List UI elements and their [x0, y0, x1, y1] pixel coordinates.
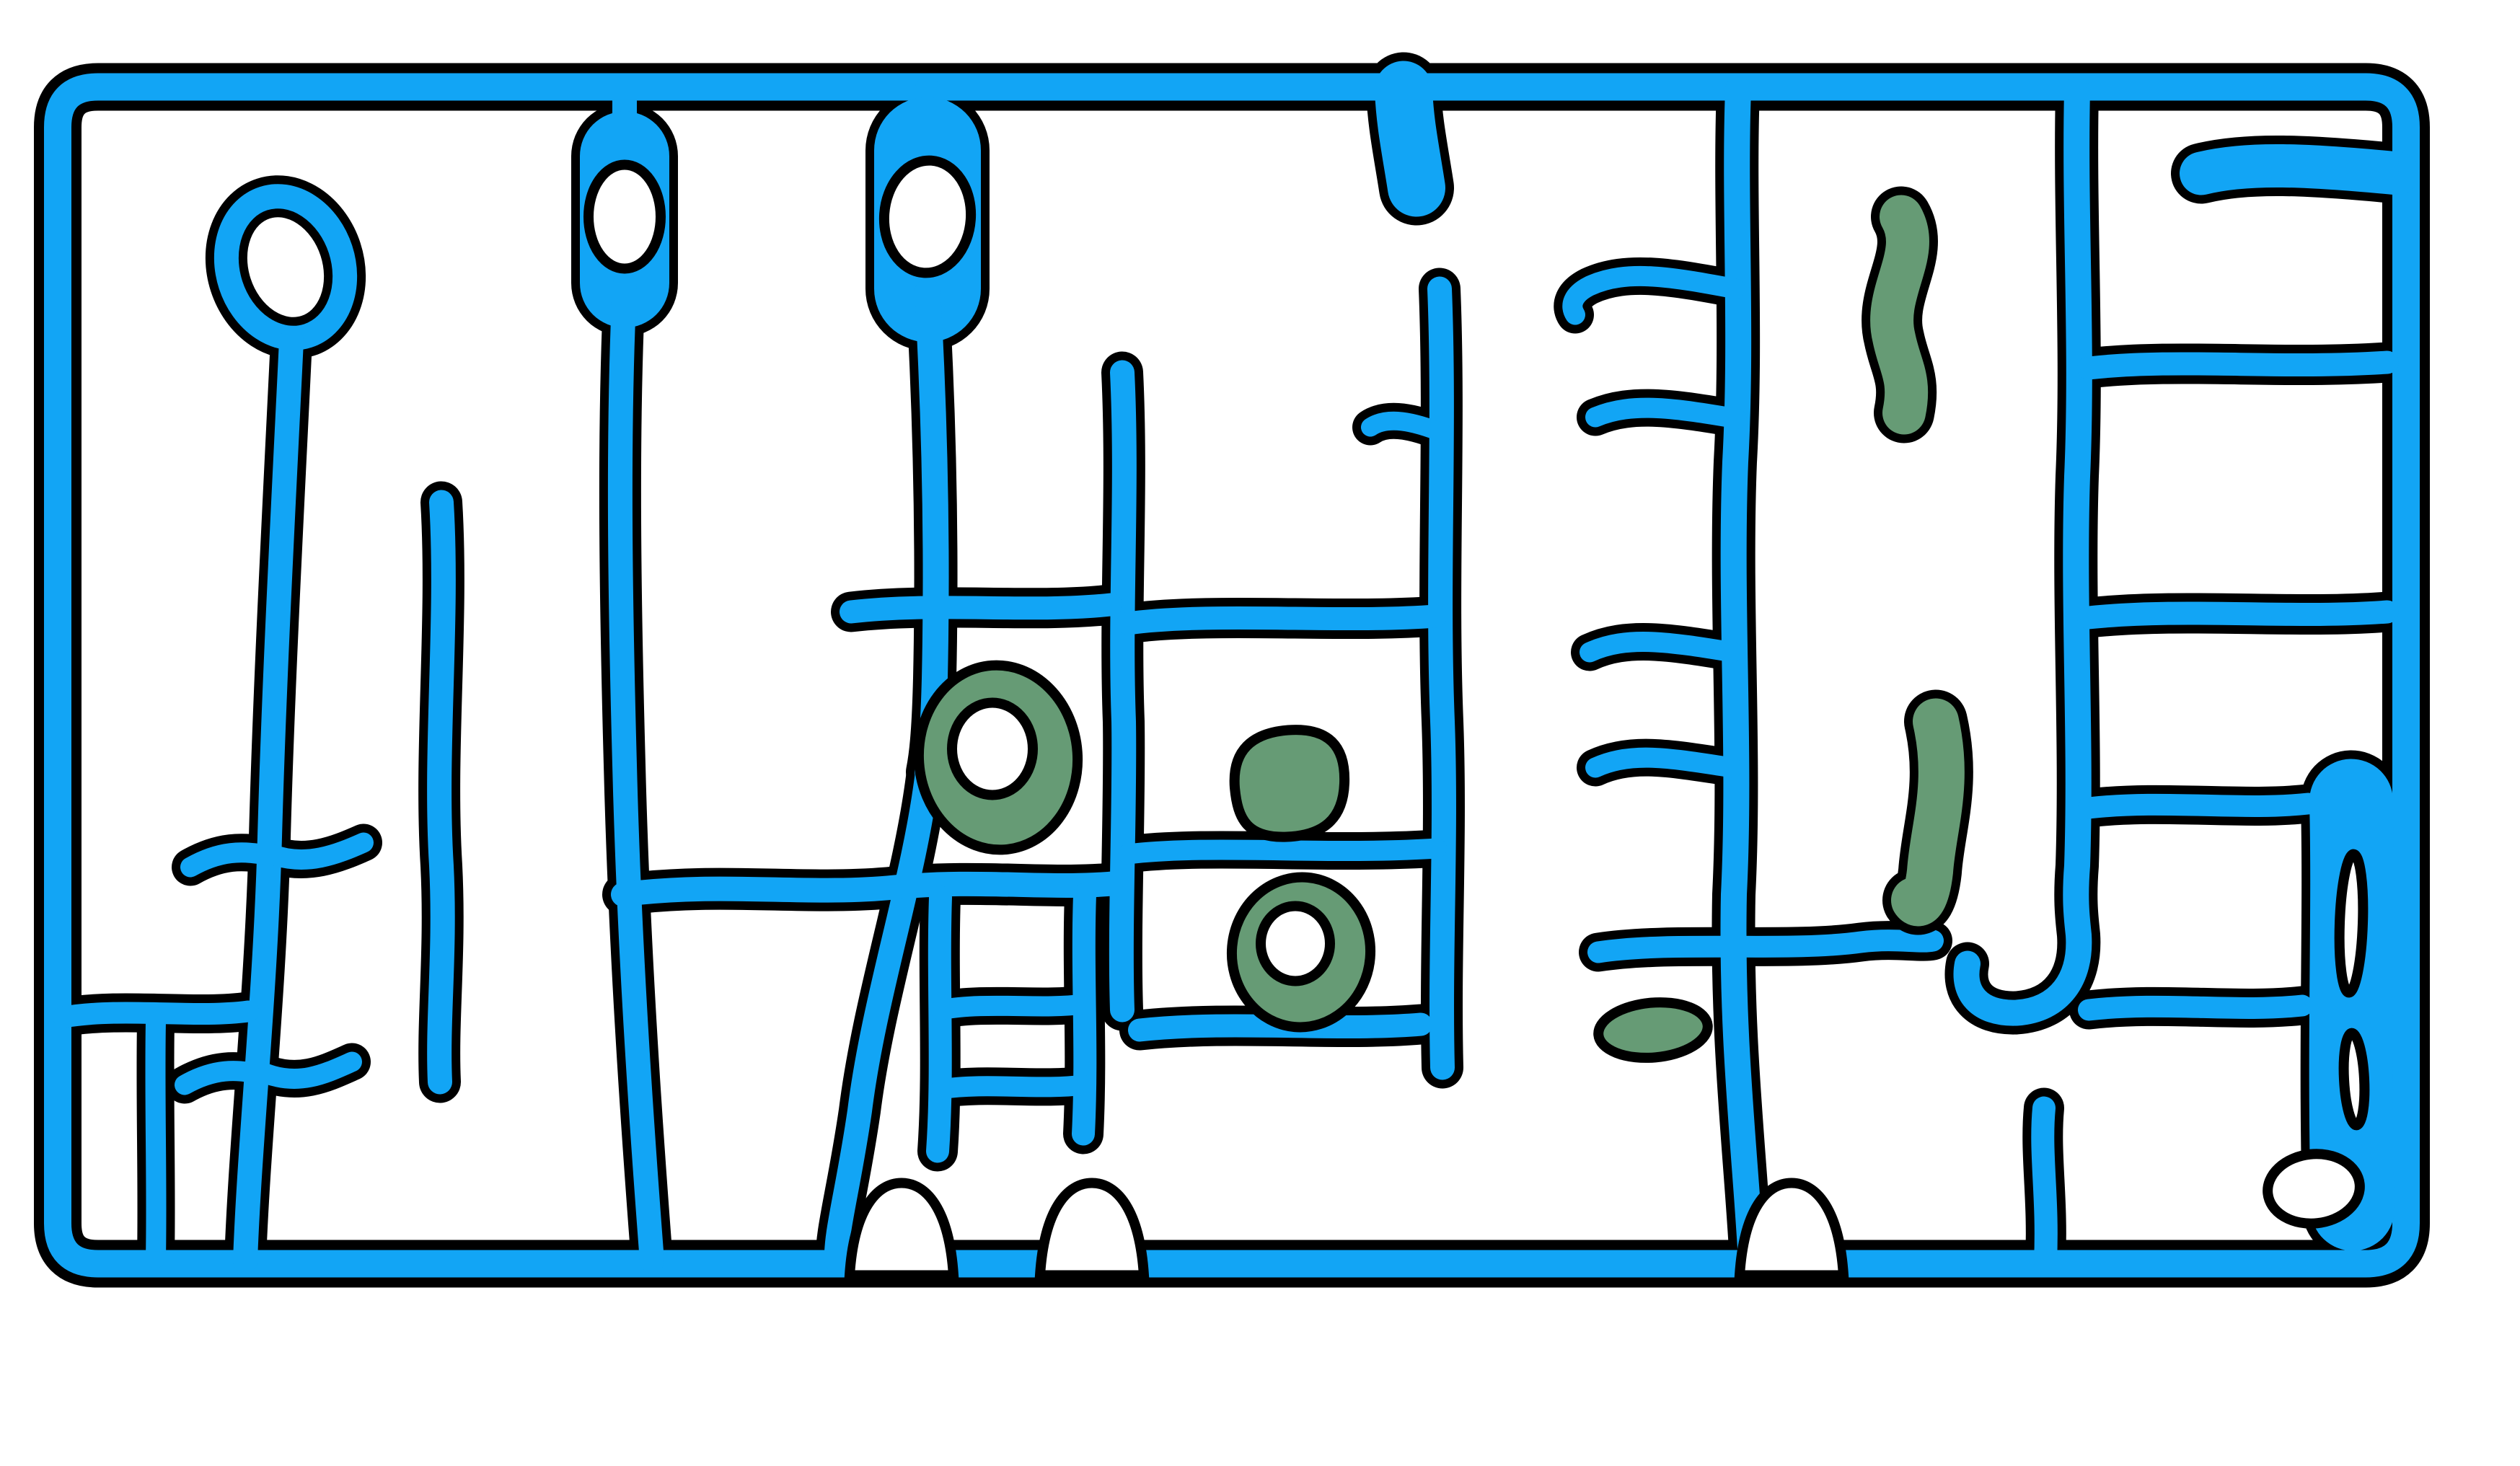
green-kidney-blob	[1914, 722, 1942, 904]
trident-stub-lower	[185, 1062, 352, 1085]
egg1-white-notch	[589, 165, 661, 269]
green-small-oval	[1596, 998, 1710, 1062]
green-donut-2-hole	[1261, 906, 1330, 981]
left-finger	[439, 503, 444, 1082]
ladder-rung-1	[940, 1004, 1083, 1010]
green-rounded-blob	[1235, 730, 1344, 837]
bottom-left-divider	[155, 1022, 156, 1258]
donut-cell-top-bar	[851, 605, 1111, 612]
green-donut-1-hole	[952, 703, 1033, 795]
right-col-bar-3	[2089, 804, 2308, 808]
inner-finger	[1122, 373, 1124, 1010]
comb-prong-4	[1595, 758, 1732, 768]
outer-border-channel	[58, 87, 2406, 1264]
top-bump	[1404, 90, 1417, 188]
mid-cross-bar	[1128, 617, 1435, 624]
maze-drawing-stage	[0, 0, 2520, 1466]
egg2-white-notch	[881, 158, 975, 276]
trident-stub-upper	[190, 843, 364, 867]
green-s-blob	[1892, 217, 1908, 413]
bottom-right-riser	[2043, 1108, 2046, 1261]
cell-maze-illustration	[0, 0, 2520, 1466]
bottom-arch-2	[1040, 1183, 1144, 1276]
right-col-bar-2	[2089, 612, 2387, 618]
right-col-bar-4	[2089, 1006, 2302, 1010]
ladder-rung-2	[940, 1085, 1083, 1090]
center-finger	[1440, 289, 1444, 1068]
comb-prong-3	[1590, 642, 1732, 652]
comb-prong-2	[1595, 408, 1737, 419]
right-col-bar-1	[2089, 363, 2387, 368]
outer-border-channel-outline	[58, 87, 2406, 1264]
lower-cross-bar	[1598, 940, 1933, 952]
tall-right-vertical-hook-outline	[1966, 90, 2079, 1013]
right-band-sliver-2	[2342, 1033, 2367, 1126]
center-finger-stub	[1370, 421, 1442, 433]
top-right-tongue	[2201, 166, 2397, 174]
blob-divider-bar	[1128, 849, 1437, 855]
right-band-sliver-1	[2338, 854, 2366, 993]
bottom-right-corner-cell	[2264, 1149, 2363, 1228]
donut-cell-bottom-bar	[623, 883, 1119, 895]
ladder-left-leg	[938, 898, 940, 1152]
